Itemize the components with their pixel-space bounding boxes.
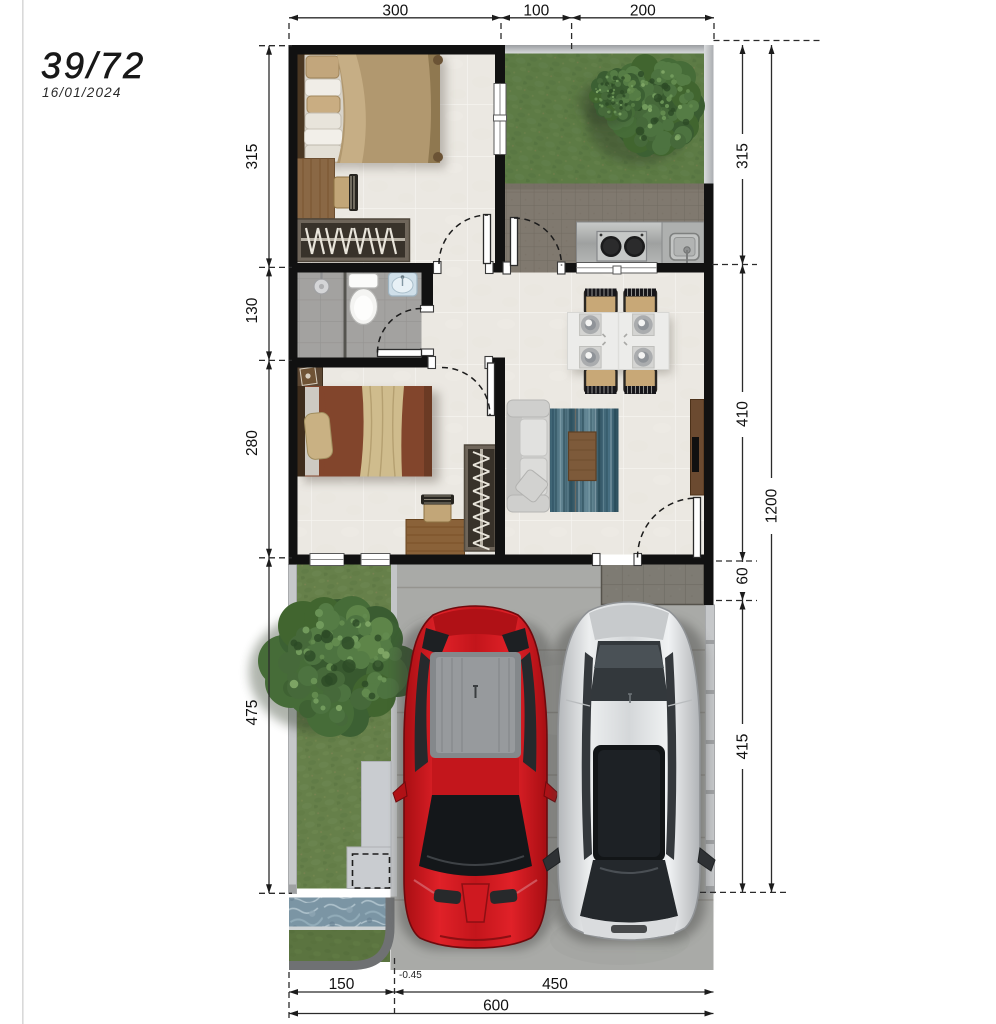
svg-text:1200: 1200 [764, 488, 781, 523]
svg-text:100: 100 [523, 3, 549, 20]
svg-text:200: 200 [630, 3, 656, 20]
svg-text:-0.45: -0.45 [399, 970, 422, 981]
svg-text:410: 410 [735, 401, 752, 427]
svg-text:415: 415 [735, 734, 752, 760]
svg-text:300: 300 [382, 3, 408, 20]
svg-text:315: 315 [244, 144, 261, 170]
svg-text:475: 475 [244, 700, 261, 726]
svg-text:16/01/2024: 16/01/2024 [42, 85, 122, 100]
svg-text:600: 600 [483, 998, 509, 1015]
svg-text:60: 60 [735, 567, 752, 585]
svg-text:315: 315 [735, 143, 752, 169]
svg-text:150: 150 [329, 976, 355, 993]
svg-text:130: 130 [244, 297, 261, 323]
svg-text:280: 280 [244, 430, 261, 456]
svg-text:450: 450 [542, 976, 568, 993]
svg-text:39/72: 39/72 [41, 45, 146, 86]
